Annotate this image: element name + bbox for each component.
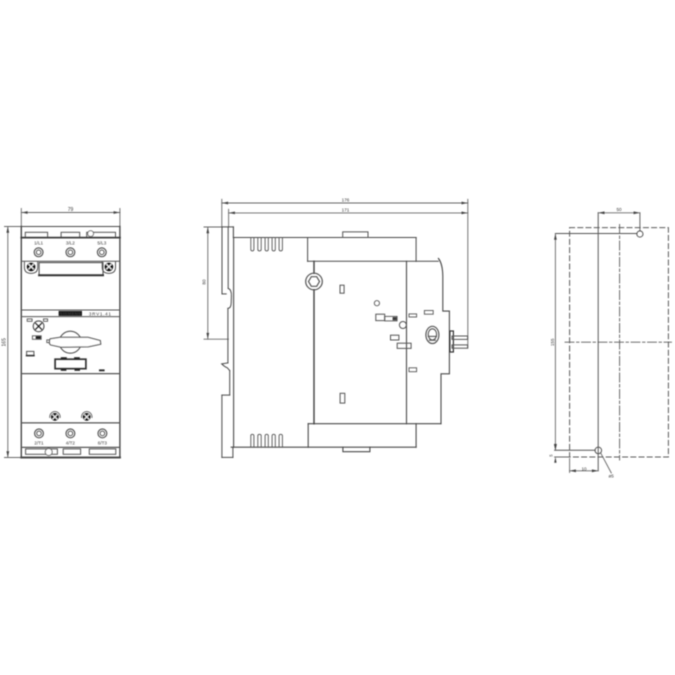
svg-text:10: 10 — [581, 466, 587, 471]
svg-text:80: 80 — [201, 279, 206, 285]
svg-text:5: 5 — [549, 454, 554, 457]
svg-text:165: 165 — [2, 338, 8, 347]
svg-text:171: 171 — [342, 207, 350, 212]
svg-text:6/T3: 6/T3 — [98, 441, 108, 446]
svg-text:3/L2: 3/L2 — [66, 240, 75, 245]
svg-text:5/L3: 5/L3 — [97, 240, 106, 245]
svg-text:176: 176 — [342, 198, 350, 203]
svg-text:79: 79 — [68, 207, 74, 213]
svg-text:50: 50 — [616, 207, 622, 212]
svg-text:2/T1: 2/T1 — [34, 441, 44, 446]
svg-text:4/T2: 4/T2 — [66, 441, 76, 446]
svg-text:155: 155 — [550, 338, 555, 346]
svg-text:SIEMENS: SIEMENS — [60, 312, 81, 316]
svg-text:3RV1.41: 3RV1.41 — [89, 312, 111, 317]
svg-text:1/L1: 1/L1 — [34, 240, 43, 245]
svg-text:ø5: ø5 — [609, 474, 615, 479]
